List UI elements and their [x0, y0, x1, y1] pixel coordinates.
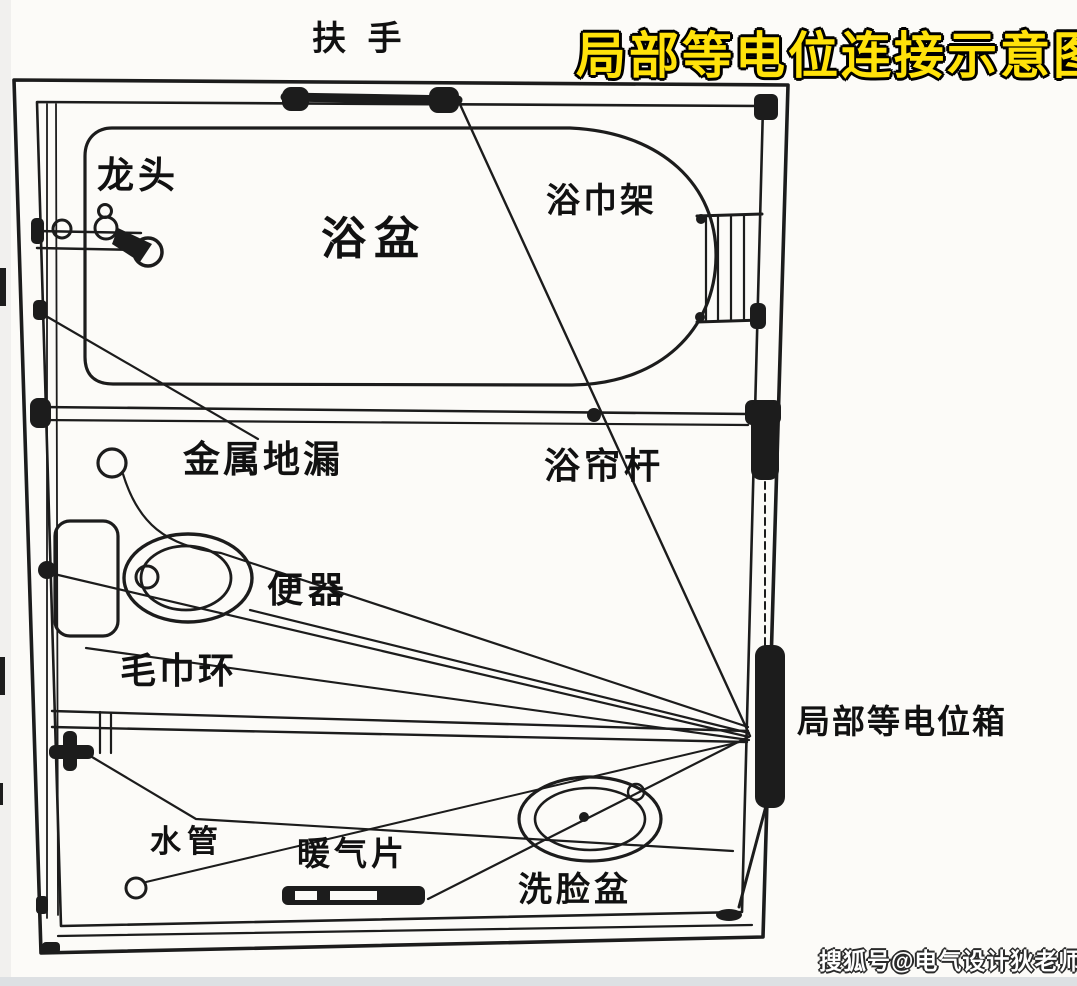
- label-water-pipe: 水管: [150, 826, 224, 857]
- label-curtain-rod: 浴帘杆: [544, 448, 664, 484]
- label-washbasin: 洗脸盆: [518, 873, 632, 907]
- label-towel-rack: 浴巾架: [546, 184, 657, 218]
- label-floor-drain: 金属地漏: [183, 441, 343, 478]
- label-towel-ring: 毛巾环: [120, 653, 237, 689]
- label-faucet: 龙头: [97, 157, 179, 194]
- label-bathtub: 浴盆: [321, 216, 427, 261]
- towel-rack-shape: [695, 214, 766, 329]
- handrail-shape: [282, 87, 459, 113]
- toilet-shape: [38, 521, 749, 740]
- scan-bottom-strip: [0, 977, 1077, 986]
- curtain-rod-shape: [30, 398, 781, 480]
- label-toilet: 便器: [267, 572, 349, 608]
- label-equipotential-box: 局部等电位箱: [797, 705, 1007, 738]
- label-handrail: 扶 手: [312, 22, 407, 56]
- radiator-shape: [282, 886, 425, 905]
- page-title: 局部等电位连接示意图: [576, 16, 1077, 88]
- diagram: 扶 手 龙头 浴盆 浴巾架 金属地漏 浴帘杆 便器 毛巾环 局部等电位箱 水管 …: [0, 0, 1077, 986]
- label-radiator: 暖气片: [297, 837, 408, 870]
- watermark: 搜狐号@电气设计狄老师: [819, 942, 1077, 976]
- faucet-shape: [31, 205, 162, 321]
- water-pipe-shape: [126, 740, 748, 898]
